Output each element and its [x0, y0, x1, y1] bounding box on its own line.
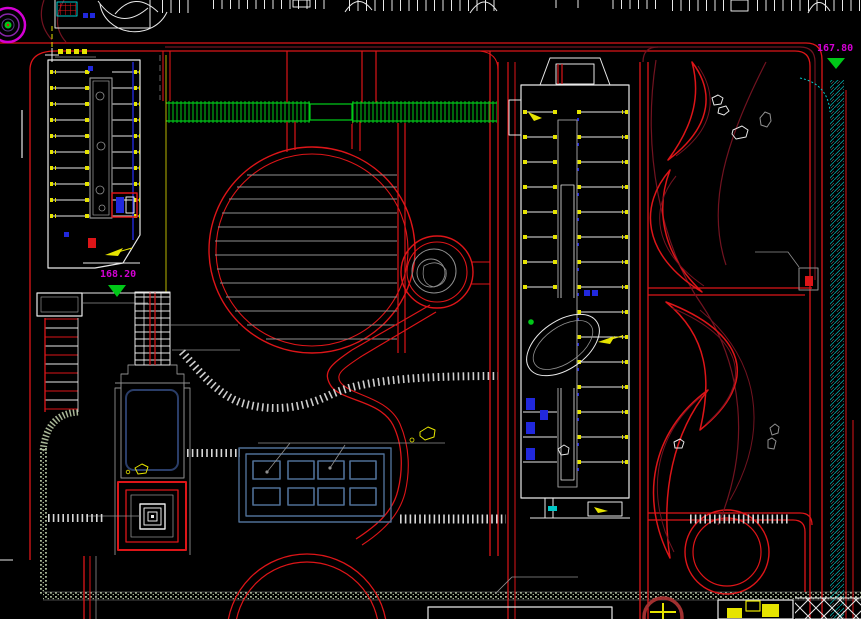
trellis-grid	[239, 443, 445, 522]
tree-symbol	[0, 8, 59, 62]
central-plaza	[209, 147, 490, 545]
plaza-terrace-steps	[215, 175, 397, 339]
bottom-structures	[0, 560, 861, 619]
gate-box	[755, 252, 818, 290]
elevation-label-167-80: 167.80	[817, 43, 853, 54]
parking-stalls	[115, 0, 860, 14]
secondary-road-offsets	[41, 0, 815, 525]
elevation-label-168-20: 168.20	[100, 269, 136, 280]
cad-drawing-canvas[interactable]: 168.20 167.80	[0, 0, 861, 619]
crescent-planting-beds	[650, 62, 779, 558]
slope-hatch-band	[800, 78, 853, 619]
left-building	[48, 0, 167, 268]
stair-terraces	[37, 292, 240, 412]
fountain	[401, 236, 473, 308]
stepping-stone-paths	[48, 352, 790, 519]
site-plan-svg	[0, 0, 861, 619]
elevation-marker-triangles	[108, 58, 845, 297]
middle-building	[509, 0, 630, 518]
